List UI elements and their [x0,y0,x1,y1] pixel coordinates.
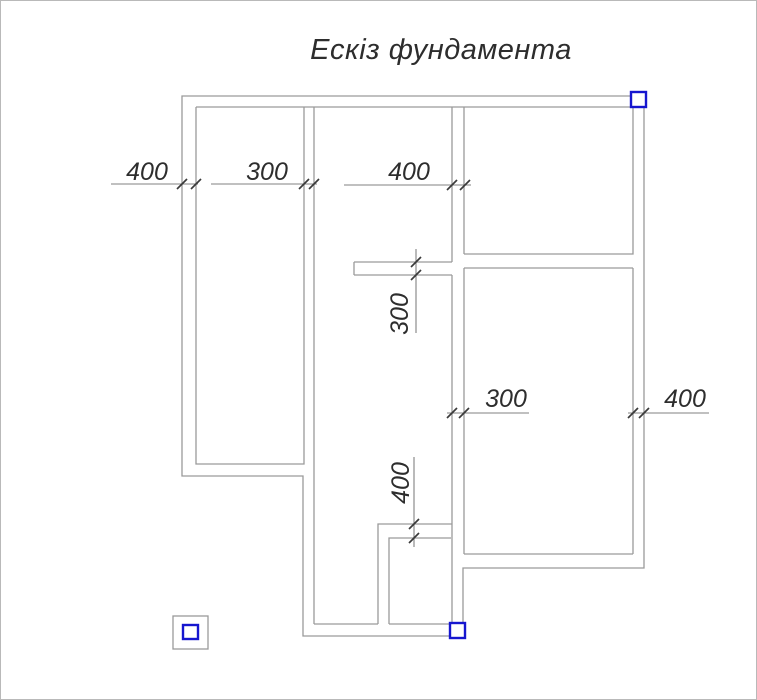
dim-400-vertical: 400 [387,457,419,547]
dim-400-top-left: 400 [111,158,201,189]
legend-column-marker [183,625,198,639]
dim-300-top-left: 300 [211,158,319,189]
stub-wall [354,262,452,275]
page-title: Ескіз фундамента [310,34,572,66]
drawing-canvas: Ескіз фундамента 400300400300400300400 [0,0,757,700]
corner-marker-bottom [450,623,465,638]
dimension-label: 300 [246,158,288,186]
dim-300-middle-right: 300 [447,385,529,418]
foundation-sketch-svg: Ескіз фундамента 400300400300400300400 [1,1,756,699]
dim-400-right: 400 [628,385,709,418]
dimension-label: 400 [388,158,430,186]
dimensions-layer: 400300400300400300400 [111,158,709,547]
corner-marker-top-right [631,92,646,107]
small-room-inner-outline [389,538,451,624]
dimension-label: 400 [664,385,706,413]
top-right-room-inner-outline [464,107,633,254]
dimension-label: 400 [387,462,415,504]
dimension-label: 400 [126,158,168,186]
dimension-label: 300 [485,385,527,413]
dimension-label: 300 [386,293,414,335]
